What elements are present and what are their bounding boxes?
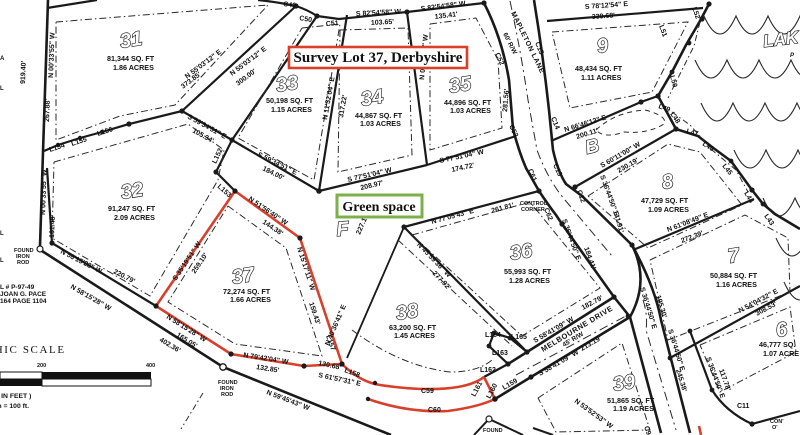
svg-text:31: 31: [118, 28, 143, 53]
svg-text:CORNER: CORNER: [521, 207, 545, 213]
svg-text:ROD: ROD: [17, 260, 29, 266]
svg-text:A: A: [0, 56, 5, 62]
svg-text:Survey Lot 37, Derbyshire: Survey Lot 37, Derbyshire: [294, 50, 463, 66]
svg-text:L: L: [0, 258, 4, 264]
svg-text:L162: L162: [480, 367, 496, 374]
svg-text:L: L: [0, 86, 4, 92]
svg-text:91,247 SQ. FT: 91,247 SQ. FT: [108, 204, 156, 213]
svg-text:ROD: ROD: [221, 392, 233, 398]
svg-text:1.19 ACRES: 1.19 ACRES: [613, 404, 654, 413]
svg-text:L: L: [0, 231, 4, 237]
svg-text:50,884 SQ. FT: 50,884 SQ. FT: [710, 271, 758, 280]
svg-text:1.66 ACRES: 1.66 ACRES: [230, 295, 271, 304]
svg-text:1.11 ACRES: 1.11 ACRES: [581, 73, 622, 82]
svg-text:1.15 ACRES: 1.15 ACRES: [271, 105, 312, 114]
svg-text:1 inch = 100 ft.: 1 inch = 100 ft.: [0, 403, 29, 410]
svg-text:( IN FEET ): ( IN FEET ): [0, 393, 31, 400]
svg-text:O': O': [772, 425, 778, 431]
svg-text:46,777 SQ.: 46,777 SQ.: [759, 340, 795, 349]
svg-text:103.65': 103.65': [371, 19, 395, 27]
svg-text:C51: C51: [326, 20, 339, 28]
svg-text:1.28 ACRES: 1.28 ACRES: [509, 276, 550, 285]
svg-text:L165: L165: [511, 334, 527, 341]
svg-text:55,993 SQ. FT: 55,993 SQ. FT: [504, 267, 552, 276]
svg-text:1.16 ACRES: 1.16 ACRES: [716, 280, 757, 289]
svg-text:161.48': 161.48': [49, 214, 57, 238]
svg-text:L163: L163: [492, 350, 508, 357]
svg-text:C11: C11: [737, 403, 750, 410]
svg-text:33: 33: [274, 72, 299, 97]
svg-text:L # P-97-49: L # P-97-49: [0, 284, 35, 291]
svg-text:38: 38: [394, 300, 420, 325]
svg-text:47,729 SQ. FT: 47,729 SQ. FT: [641, 196, 689, 205]
svg-text:37: 37: [230, 264, 256, 289]
svg-text:200: 200: [37, 363, 46, 369]
svg-text:400: 400: [146, 363, 155, 369]
svg-text:FOUND: FOUND: [483, 428, 503, 434]
svg-text:Green space: Green space: [342, 200, 415, 215]
svg-text:C60: C60: [428, 407, 441, 414]
svg-text:1.03 ACRES: 1.03 ACRES: [450, 106, 491, 115]
svg-text:1.07 ACRE: 1.07 ACRE: [763, 349, 799, 358]
svg-text:35: 35: [447, 73, 473, 98]
svg-text:267.88': 267.88': [44, 98, 52, 122]
svg-text:C59: C59: [421, 388, 434, 395]
svg-text:JOAN G. PACE: JOAN G. PACE: [0, 291, 47, 298]
svg-text:32: 32: [119, 179, 144, 204]
svg-text:2.09 ACRES: 2.09 ACRES: [114, 213, 155, 222]
svg-text:GRAPHIC SCALE: GRAPHIC SCALE: [0, 344, 66, 356]
svg-text:164 PAGE 1104: 164 PAGE 1104: [0, 298, 47, 305]
svg-text:36: 36: [508, 240, 534, 265]
svg-text:48,434 SQ. FT: 48,434 SQ. FT: [575, 64, 623, 73]
svg-text:1.09 ACRES: 1.09 ACRES: [648, 205, 689, 214]
svg-text:L164: L164: [485, 332, 501, 339]
svg-text:39: 39: [611, 371, 637, 396]
svg-text:919.40': 919.40': [20, 60, 28, 84]
svg-text:1.45 ACRES: 1.45 ACRES: [394, 331, 435, 340]
svg-text:50,198 SQ. FT: 50,198 SQ. FT: [266, 96, 314, 105]
svg-text:1.03 ACRES: 1.03 ACRES: [360, 119, 401, 128]
svg-text:34: 34: [359, 86, 384, 111]
svg-text:81,344 SQ. FT: 81,344 SQ. FT: [107, 54, 155, 63]
svg-text:1.86 ACRES: 1.86 ACRES: [113, 63, 154, 72]
